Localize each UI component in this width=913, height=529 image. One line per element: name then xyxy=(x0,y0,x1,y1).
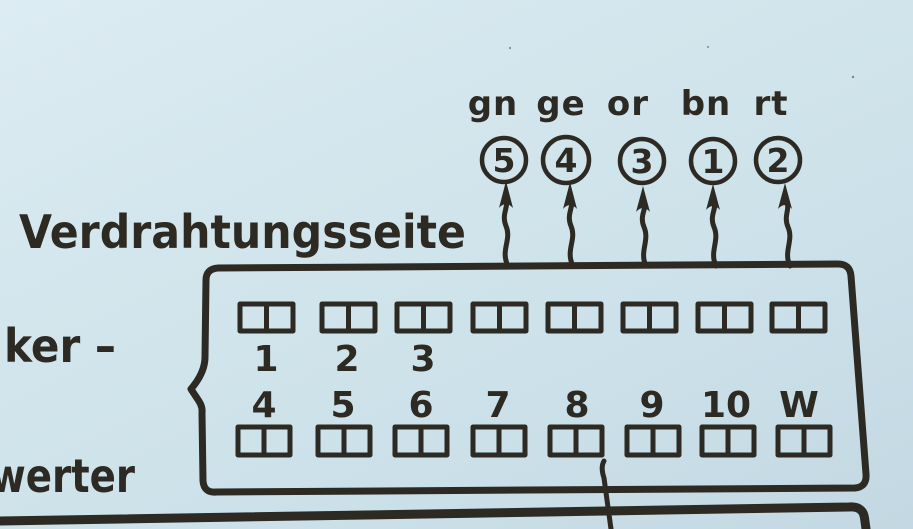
wire-callout-ge: ge 4 xyxy=(536,84,589,266)
terminal-pin-bottom-1 xyxy=(238,427,290,455)
terminal-pin-top-5 xyxy=(548,304,601,331)
page-title: Verdrahtungsseite xyxy=(19,205,466,259)
housing-outline xyxy=(191,264,866,492)
pin-label-1: 1 xyxy=(253,339,278,380)
wire-color-label: ge xyxy=(536,84,585,124)
wire-color-label: gn xyxy=(468,84,519,124)
wavy-up-arrow-icon xyxy=(712,202,716,266)
terminal-number: 3 xyxy=(631,142,654,181)
terminal-pin-bottom-7 xyxy=(702,427,754,455)
terminal-pin-bottom-3 xyxy=(395,427,447,455)
wire-color-label: rt xyxy=(753,84,788,124)
arrowhead-icon xyxy=(563,182,577,209)
wire-color-label: bn xyxy=(681,84,732,124)
terminal-pin-top-1 xyxy=(240,304,293,331)
pin-label-7: 7 xyxy=(485,385,510,426)
pin-label-w: W xyxy=(779,385,819,426)
pin-row-top xyxy=(240,304,825,331)
terminal-pin-bottom-8 xyxy=(778,427,830,455)
wavy-up-arrow-icon xyxy=(786,201,790,266)
connector-housing: 1 2 3 4 5 6 7 8 9 10 W xyxy=(191,264,866,492)
pin-label-2: 2 xyxy=(334,339,359,380)
terminal-pin-top-8 xyxy=(772,304,825,331)
terminal-pin-top-4 xyxy=(473,304,526,331)
wiring-diagram: Verdrahtungsseite ker – werter gn 5 ge 4… xyxy=(0,0,913,529)
terminal-number: 5 xyxy=(493,141,516,180)
terminal-number: 1 xyxy=(702,142,725,181)
wavy-up-arrow-icon xyxy=(504,199,508,266)
wavy-up-arrow-icon xyxy=(642,203,646,266)
wire-callout-rt: rt 2 xyxy=(753,84,800,266)
pin-label-10: 10 xyxy=(701,385,751,426)
scanned-page: Verdrahtungsseite ker – werter gn 5 ge 4… xyxy=(0,0,913,529)
terminal-pin-bottom-4 xyxy=(473,427,525,455)
terminal-number: 4 xyxy=(555,141,578,180)
terminal-number: 2 xyxy=(767,141,790,180)
pin-label-3: 3 xyxy=(410,339,435,380)
wire-callout-bn: bn 1 xyxy=(681,84,735,266)
pin-row-bottom xyxy=(238,427,830,455)
left-text-upper: ker – xyxy=(4,319,116,373)
pin-label-6: 6 xyxy=(408,385,433,426)
lower-box-top-edge xyxy=(0,507,866,529)
pin-label-5: 5 xyxy=(330,385,355,426)
terminal-pin-bottom-5 xyxy=(550,427,602,455)
wire-callout-or: or 3 xyxy=(607,84,664,266)
pin-label-8: 8 xyxy=(564,385,589,426)
wire-color-label: or xyxy=(607,84,649,124)
wavy-up-arrow-icon xyxy=(569,200,573,266)
terminal-pin-bottom-6 xyxy=(627,427,679,455)
signal-line xyxy=(602,461,611,529)
wire-callout-gn: gn 5 xyxy=(468,84,526,266)
left-text-lower: werter xyxy=(0,449,135,503)
terminal-pin-top-2 xyxy=(322,304,375,331)
arrowhead-icon xyxy=(499,181,513,208)
pin-label-4: 4 xyxy=(251,385,276,426)
terminal-pin-top-7 xyxy=(698,304,751,331)
terminal-pin-top-6 xyxy=(623,304,676,331)
terminal-pin-top-3 xyxy=(397,304,450,331)
pin-label-9: 9 xyxy=(639,385,664,426)
terminal-pin-bottom-2 xyxy=(318,427,370,455)
